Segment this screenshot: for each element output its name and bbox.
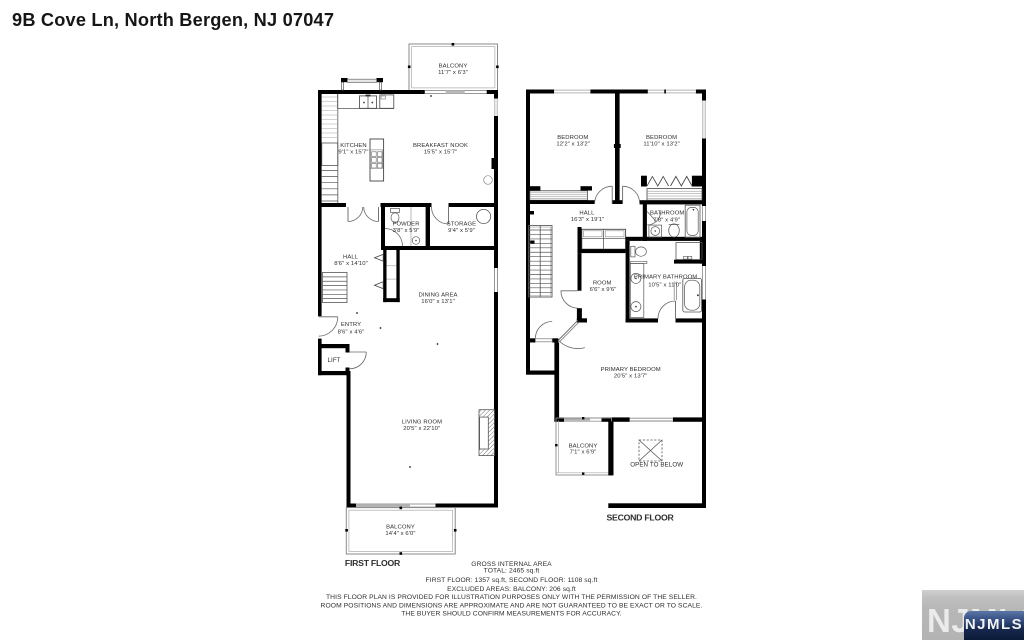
svg-text:BREAKFAST NOOK: BREAKFAST NOOK: [413, 143, 468, 149]
svg-text:16'0" x 13'1": 16'0" x 13'1": [421, 299, 455, 305]
svg-text:BALCONY: BALCONY: [386, 524, 415, 530]
svg-text:16'3" x 19'1": 16'3" x 19'1": [571, 217, 605, 223]
svg-text:FIRST FLOOR: FIRST FLOOR: [345, 558, 401, 568]
svg-text:LIVING ROOM: LIVING ROOM: [402, 420, 442, 426]
svg-text:FIRST FLOOR: 1357 sq.ft, SECON: FIRST FLOOR: 1357 sq.ft, SECOND FLOOR: 1…: [426, 577, 598, 584]
svg-text:11'10" x 13'2": 11'10" x 13'2": [643, 142, 680, 148]
svg-text:3'8" x 5'9": 3'8" x 5'9": [393, 228, 420, 234]
svg-text:8'6" x 4'6": 8'6" x 4'6": [338, 330, 365, 336]
svg-text:THE BUYER SHOULD CONFIRM MEASU: THE BUYER SHOULD CONFIRM MEASUREMENTS FO…: [401, 611, 622, 618]
svg-text:6'6" x 9'6": 6'6" x 9'6": [590, 287, 617, 293]
svg-text:POWDER: POWDER: [392, 222, 419, 228]
svg-text:SECOND FLOOR: SECOND FLOOR: [607, 512, 675, 522]
svg-text:15'5" x 15'7": 15'5" x 15'7": [424, 150, 458, 156]
svg-text:ROOM POSITIONS AND DIMENSIONS: ROOM POSITIONS AND DIMENSIONS ARE APPROX…: [321, 602, 703, 609]
svg-text:20'5" x 13'7": 20'5" x 13'7": [614, 374, 648, 380]
svg-text:20'5" x 22'10": 20'5" x 22'10": [403, 426, 440, 432]
svg-text:9'4" x 5'9": 9'4" x 5'9": [448, 228, 475, 234]
svg-text:TOTAL: 2465 sq.ft: TOTAL: 2465 sq.ft: [484, 568, 540, 575]
svg-text:HALL: HALL: [579, 210, 595, 216]
svg-text:KITCHEN: KITCHEN: [340, 143, 367, 149]
svg-text:OPEN TO BELOW: OPEN TO BELOW: [630, 461, 683, 468]
svg-text:HALL: HALL: [343, 255, 359, 261]
svg-text:BEDROOM: BEDROOM: [557, 135, 588, 141]
svg-text:PRIMARY BEDROOM: PRIMARY BEDROOM: [601, 367, 661, 373]
svg-text:9'1" x 15'7": 9'1" x 15'7": [338, 150, 368, 156]
svg-text:BALCONY: BALCONY: [439, 64, 468, 70]
svg-text:ENTRY: ENTRY: [341, 322, 361, 328]
svg-text:7'1" x 6'9": 7'1" x 6'9": [570, 450, 597, 456]
svg-text:8'6" x 14'10": 8'6" x 14'10": [334, 261, 368, 267]
svg-text:DINING AREA: DINING AREA: [418, 293, 457, 299]
svg-text:BEDROOM: BEDROOM: [646, 135, 677, 141]
svg-text:ROOM: ROOM: [593, 281, 612, 287]
svg-text:PRIMARY BATHROOM: PRIMARY BATHROOM: [634, 275, 697, 281]
svg-text:BALCONY: BALCONY: [569, 443, 598, 449]
svg-text:7'8" x 4'9": 7'8" x 4'9": [653, 218, 680, 224]
svg-text:12'2" x 13'2": 12'2" x 13'2": [556, 142, 590, 148]
svg-text:BATHROOM: BATHROOM: [650, 211, 684, 217]
svg-text:11'7" x 6'3": 11'7" x 6'3": [438, 70, 468, 76]
svg-text:STORAGE: STORAGE: [447, 222, 476, 228]
svg-text:LIFT: LIFT: [328, 357, 341, 364]
svg-text:THIS FLOOR PLAN IS PROVIDED FO: THIS FLOOR PLAN IS PROVIDED FOR ILLUSTRA…: [326, 594, 697, 601]
svg-text:14'4" x 6'0": 14'4" x 6'0": [385, 531, 415, 537]
svg-text:EXCLUDED AREAS: BALCONY: 206 s: EXCLUDED AREAS: BALCONY: 206 sq.ft: [447, 586, 576, 593]
